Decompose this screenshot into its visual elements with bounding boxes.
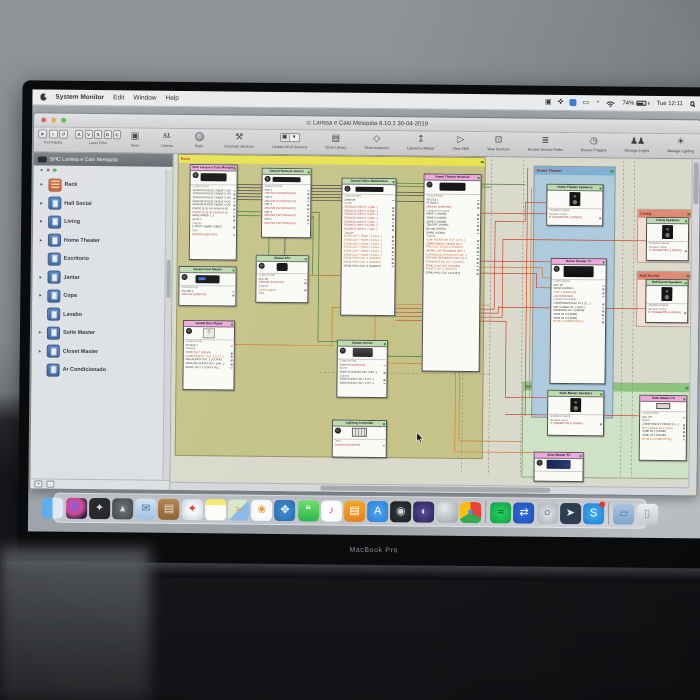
dock-icon-messages[interactable]: ❝ (298, 500, 319, 521)
toolbar-item-label: Manage Lighting (667, 149, 694, 153)
disclosure-triangle-icon[interactable]: ▸ (40, 182, 45, 188)
toolbar-item-label: Manage Logins (625, 148, 650, 152)
disclosure-triangle-icon[interactable]: ▸ (40, 200, 45, 206)
port-row[interactable]: Ethernet (Ethernet) (191, 233, 234, 237)
port-connector-icon (307, 219, 309, 221)
port-connector-icon (392, 229, 394, 231)
dock-icon-anyconnect[interactable]: ✥ (274, 499, 295, 520)
port-connector-icon (392, 225, 394, 227)
toolbar-item-label: State (195, 144, 203, 148)
sidebar-header-label: SHC Larissa e Caio Mesquita (50, 156, 118, 163)
layer-filter-button-v[interactable]: V (85, 130, 93, 139)
toolbar-item-label: Generate Services (224, 144, 254, 148)
port-connector-icon (602, 318, 604, 320)
bar-device-icon (355, 186, 383, 191)
port-connector-icon (307, 212, 309, 214)
node-savant-server[interactable]: Savant ServerControl PortsEthernet (Ethe… (336, 340, 388, 399)
node-device-image (547, 190, 602, 209)
menu-clock[interactable]: Tue 12:11 (657, 100, 683, 106)
port-row[interactable]: Ethernet Port (Ethernet) (264, 222, 309, 226)
sidebar-item-copa[interactable]: ▸Copa (32, 286, 171, 306)
node-device-image (646, 285, 687, 303)
dock-icon-app-store[interactable]: A (367, 500, 388, 521)
zone-icon (47, 363, 60, 376)
port-section-heading[interactable]: Data (258, 292, 306, 296)
layer-filter-button-c[interactable]: C (113, 130, 121, 139)
port-connector-icon (307, 193, 309, 195)
sidebar-item-escritorio[interactable]: Escritorio (33, 249, 172, 269)
sl-logo-icon: SL (163, 131, 171, 142)
layer-filter-button-a[interactable]: A (75, 130, 83, 139)
port-row[interactable]: ZONE PRE OUT (AUDIO) (425, 272, 478, 276)
node-port-list: Amplified InputsSpeaker InputIn (Speaker… (548, 414, 603, 427)
wire (481, 261, 551, 262)
port-connector-icon (233, 197, 235, 199)
clock-icon[interactable]: ◔ (595, 99, 599, 106)
sidebar-item-label: Escritorio (64, 256, 89, 262)
sidebar-item-living[interactable]: ▸Living (33, 212, 172, 232)
node-savant-host[interactable]: Savant Host MasterControl PortsRS-232 1E… (178, 266, 236, 307)
dock-icon-pointer-app[interactable]: ➤ (560, 502, 581, 523)
sidebar-item-suite-master[interactable]: ▸Suite Master (32, 323, 171, 343)
dock-icon-trash[interactable]: ▯ (637, 503, 658, 524)
dock-icon-magnifier-app[interactable]: ○ (537, 502, 558, 523)
dock-icon-contacts[interactable]: ▤ (158, 498, 179, 519)
rack-icon (48, 178, 61, 191)
toolbar-item-show-library[interactable]: ▤Show Library (325, 132, 346, 149)
desk-surface (0, 548, 150, 700)
port-connector-icon (602, 296, 604, 298)
wire (235, 307, 340, 346)
node-port-list: Control PortsBLE 10InputsCOMPONENT VIDEO… (640, 411, 686, 442)
device-avatar-icon (264, 176, 270, 182)
port-connector-icon (233, 205, 235, 207)
disclosure-triangle-icon[interactable]: ▸ (39, 348, 44, 354)
port-label: AV IN 1 (COMPOSITE) (553, 320, 584, 324)
inspector-icon: ◇ (373, 133, 380, 144)
port-connector-icon (477, 203, 479, 205)
apple-menu-icon[interactable] (40, 93, 46, 100)
add-zone-button[interactable]: + (34, 480, 42, 487)
node-hall-social-speakers[interactable]: Hall Social SpeakersAmplified InputsSpea… (645, 279, 688, 323)
node-suite-master-speakers[interactable]: Suite Master SpeakersAmplified InputsSpe… (547, 390, 604, 437)
node-device-image (647, 223, 688, 241)
cursor-tool-button[interactable]: ➤ (38, 129, 47, 138)
save-icon: ▣ (131, 130, 140, 141)
dock-icon-itunes[interactable]: ♪ (321, 500, 342, 521)
port-connector-icon (230, 367, 232, 369)
port-label: ZONE PRE OUT (AUDIO) (425, 272, 460, 276)
port-connector-icon (600, 423, 602, 425)
zone-separator (520, 160, 523, 476)
disclosure-triangle-icon[interactable]: ▸ (40, 219, 45, 225)
port-connector-icon (233, 208, 235, 210)
port-connector-icon (307, 208, 309, 210)
device-avatar-icon (192, 172, 198, 178)
port-connector-icon (391, 255, 393, 257)
port-connector-icon (392, 247, 394, 249)
layer-filter-button-s[interactable]: S (94, 130, 102, 139)
users-icon: ♟♟ (630, 136, 644, 147)
remove-zone-button[interactable]: - (46, 481, 54, 488)
tool-palette-label: Tool Palette (44, 140, 63, 144)
device-avatar-icon (344, 186, 350, 192)
dock-icon-launchpad[interactable]: ▴ (112, 498, 133, 519)
device-avatar-icon (536, 460, 542, 466)
port-connector-icon (233, 227, 235, 229)
server-device-icon (352, 348, 372, 357)
hostamp-device-icon (196, 275, 220, 283)
node-device-image (342, 184, 395, 195)
disclosure-triangle-icon[interactable]: ▸ (39, 330, 44, 336)
zone-icon (48, 215, 61, 228)
toolbar-item-label: View SMS (453, 146, 470, 150)
dock: ✦▴✉▤✦➢❀✥❝♪▤A◉◐●≈⇄○➤S▱▯ (54, 493, 646, 529)
port-connector-icon (383, 372, 385, 374)
port-row[interactable]: In (Speaker/IN L) (Mono) (648, 249, 686, 253)
zone-icon (48, 252, 61, 265)
port-connector-icon (476, 269, 478, 271)
port-row[interactable]: In (Speaker/IN L) (Mono) (550, 422, 602, 426)
status-icons: ▣✜▭◔ (545, 99, 599, 107)
battery-indicator[interactable]: 74% (622, 100, 649, 106)
clock-icon: ◷ (590, 135, 598, 146)
disclosure-triangle-icon[interactable]: ▸ (39, 293, 44, 299)
port-row[interactable]: Ethernet (Ethernet) (334, 443, 384, 447)
dock-icon-teamviewer[interactable]: ⇄ (513, 502, 534, 523)
node-suite-master-tv[interactable]: Suite Master TV (533, 452, 583, 483)
dock-icon-dark-app[interactable]: ✦ (89, 498, 110, 519)
node-network-switch[interactable]: Savant Network SwitchNetwork PortsPort 1… (261, 168, 312, 239)
node-global-disc[interactable]: Global Disc Player?Control PortsRS-232 1… (182, 320, 235, 391)
zoom-tool-button[interactable]: ○ (49, 130, 58, 139)
port-connector-icon (685, 250, 687, 252)
port-connector-icon (232, 291, 234, 293)
node-device-image (640, 401, 686, 411)
port-connector-icon (602, 314, 604, 316)
sidebar-item-jantar[interactable]: ▸Jantar (32, 268, 171, 288)
node-device-image (263, 174, 311, 185)
node-ht-tv[interactable]: Home Theater TVControl PortsBLE 10Serial… (549, 258, 606, 385)
node-ht-speakers[interactable]: Home Theater SpeakersAmplified InputsSpe… (546, 184, 603, 227)
sidebar-item-closet-master[interactable]: ▸Closet Master (32, 342, 171, 362)
port-connector-icon (683, 435, 685, 437)
dock-icon-downloads-folder[interactable]: ▱ (613, 503, 634, 524)
wire (455, 372, 535, 453)
home-icon (38, 156, 47, 162)
dock-icon-skype[interactable]: S (583, 503, 604, 524)
node-port-list: Control PortsRS-232 1Ethernet (Ethernet) (179, 285, 235, 298)
dock-icon-safari[interactable]: ✦ (182, 498, 203, 519)
sidebar-item-label: Hall Social (64, 200, 91, 206)
device-avatar-icon (185, 328, 191, 334)
macbook: System Monitor EditWindowHelp ▣✜▭◔ 74% T… (17, 80, 700, 582)
battery-percent: 74% (622, 100, 634, 106)
tvdark-device-icon (547, 460, 571, 469)
port-connector-icon (392, 211, 394, 213)
port-connector-icon (230, 360, 232, 362)
port-connector-icon (230, 352, 232, 354)
port-connector-icon (477, 251, 479, 253)
dropdown-control: ▣▾ (280, 133, 300, 142)
spotlight-icon[interactable] (690, 102, 695, 107)
toolbar-item-view-sms[interactable]: ▷View SMS (453, 134, 470, 151)
menu-item-edit[interactable]: Edit (113, 94, 124, 101)
display: System Monitor EditWindowHelp ▣✜▭◔ 74% T… (28, 89, 700, 538)
port-connector-icon (304, 290, 306, 292)
device-avatar-icon (181, 274, 187, 280)
port-connector-icon (232, 295, 234, 297)
port-row[interactable]: HDMI AUDIO OUT 2 (H...) (339, 381, 385, 385)
zone-icon (47, 345, 60, 358)
layer-filter-group: AVSDC Layer Filter (75, 130, 121, 145)
toolbar-items: ▣SaveSLLicenseState⚒Generate Services▣▾U… (128, 130, 696, 152)
toolbar-item-save[interactable]: ▣Save (128, 130, 142, 147)
node-port-list: DataEthernet (Ethernet) (333, 439, 386, 448)
node-living-speakers[interactable]: Living SpeakersAmplified InputsSpeaker I… (646, 217, 689, 261)
speaker-device-icon (569, 192, 580, 206)
move-icon[interactable]: ✜ (558, 99, 564, 106)
dock-icon-finder[interactable] (42, 497, 63, 518)
port-connector-icon (307, 216, 309, 218)
node-shc-host[interactable]: SHC Larissa e Caio MesquitaControl Ports… (189, 164, 238, 260)
device-avatar-icon (339, 348, 345, 354)
atv-device-icon (277, 263, 288, 271)
toolbar-item-view-services[interactable]: ⊡View Services (487, 134, 510, 151)
menu-bar-status: ▣✜▭◔ 74% Tue 12:11 (545, 99, 700, 108)
port-connector-icon (477, 225, 479, 227)
toolbar-item-state[interactable]: State (192, 131, 206, 148)
port-label: HDMI AUDIO OUT 2 (H...) (339, 381, 374, 385)
port-connector-icon (304, 279, 306, 281)
display-icon[interactable]: ▭ (582, 99, 589, 106)
node-device-image (552, 264, 606, 280)
port-connector-icon (476, 273, 478, 275)
toolbar-item-label: Upload to Master (407, 146, 434, 150)
document-icon: ▤ (306, 120, 311, 126)
port-label: Data (258, 292, 264, 296)
port-connector-icon (477, 200, 479, 202)
green-dot (53, 168, 57, 172)
sidebar-item-label: Closet Master (63, 348, 98, 354)
amp-device-icon (439, 183, 465, 191)
disclosure-icon[interactable]: ▼ (40, 167, 44, 172)
port-connector-icon (392, 251, 394, 253)
port-row[interactable]: AV IN 1 (COMPOSITE) (641, 437, 684, 441)
port-connector-icon (476, 266, 478, 268)
port-connector-icon (683, 428, 685, 430)
dock-icon-mail[interactable]: ✉ (135, 498, 156, 519)
dock-divider (485, 501, 486, 523)
device-avatar-icon (553, 266, 559, 272)
port-connector-icon (233, 212, 235, 214)
menu-item-window[interactable]: Window (133, 94, 156, 101)
wire (481, 267, 551, 278)
port-connector-icon (383, 365, 385, 367)
menu-item-help[interactable]: Help (165, 95, 178, 102)
zone-icon (48, 197, 61, 210)
window-title: ▤Larissa e Caio Mesquita 8.10.1 30-04-20… (34, 117, 700, 130)
node-port-list: Amplified InputsSpeaker InputIn (Speaker… (547, 208, 602, 221)
port-connector-icon (477, 207, 479, 209)
node-device-image (179, 272, 235, 286)
library-icon: ▤ (332, 133, 341, 144)
dock-icon-chrome[interactable]: ● (460, 501, 481, 522)
port-connector-icon (231, 345, 233, 347)
port-connector-icon (477, 233, 479, 235)
port-label: Ethernet (Ethernet) (181, 293, 207, 297)
port-connector-icon (683, 439, 685, 441)
bar-device-icon (273, 176, 301, 181)
port-connector-icon (391, 258, 393, 260)
port-connector-icon (477, 240, 479, 242)
sidebar-footer: +- (30, 478, 169, 489)
wire (459, 372, 523, 442)
port-label: Ethernet (Ethernet) (191, 233, 217, 237)
node-device-image: ? (184, 326, 234, 340)
layer-filter-button-d[interactable]: D (103, 130, 111, 139)
port-row[interactable]: In (Speaker/IN L) (Mono) (648, 311, 686, 315)
sidebar-item-rack[interactable]: ▸Rack (33, 175, 172, 195)
port-connector-icon (307, 205, 309, 207)
toolbar-item-show-inspector[interactable]: ◇Show Inspector (364, 133, 389, 150)
port-connector-icon (476, 262, 478, 264)
window-main: SHC Larissa e Caio Mesquita ▼ ▸Rack▸Hall… (30, 152, 699, 495)
disclosure-triangle-icon[interactable]: ▸ (40, 237, 45, 243)
sidebar-item-ar-condicionado[interactable]: Ar Condicionado (31, 360, 170, 380)
toolbar-item-upload-to-master[interactable]: ↥Upload to Master (407, 133, 435, 150)
port-connector-icon (477, 244, 479, 246)
app-window: ▤Larissa e Caio Mesquita 8.10.1 30-04-20… (29, 112, 700, 496)
zone-separator (631, 161, 634, 477)
state-circle-icon (195, 131, 204, 142)
node-port-list: Amplified InputsSpeaker InputIn (Speaker… (647, 241, 688, 254)
tool-palette-group: ➤ ○ ↺ Tool Palette (38, 129, 68, 144)
dock-icon-photos[interactable]: ❀ (251, 499, 272, 520)
toolbar-item-license[interactable]: SLLicense (160, 131, 174, 148)
node-port-list: Control PortsRS-232 1IR Input 1Ethernet … (424, 194, 481, 277)
port-connector-icon (602, 307, 604, 309)
box-icon[interactable]: ▣ (545, 99, 552, 106)
port-connector-icon (392, 214, 394, 216)
screen-bezel: System Monitor EditWindowHelp ▣✜▭◔ 74% T… (18, 80, 700, 538)
port-row[interactable]: SPDIF OUT 1 (OPTICAL) (185, 366, 232, 370)
port-row[interactable]: In (Speaker/IN L) (Mono) (549, 216, 601, 220)
mouse-cursor (416, 432, 424, 443)
port-connector-icon (307, 223, 309, 225)
photo-background: System Monitor EditWindowHelp ▣✜▭◔ 74% T… (0, 0, 700, 700)
toolbar-item-manage-logins[interactable]: ♟♟Manage Logins (625, 136, 650, 153)
toolbar-item-generate-services[interactable]: ⚒Generate Services (224, 131, 254, 148)
node-ht-receiver[interactable]: Home Theater ReceiverControl PortsRS-232… (422, 173, 482, 372)
teamviewer-icon[interactable] (569, 99, 576, 106)
toolbar-item-update-all-ui-screens[interactable]: ▣▾Update All UI Screens (272, 132, 307, 149)
node-multiswitch[interactable]: Savant Video MultiswitchControl PortsEth… (340, 178, 396, 317)
wifi-icon[interactable] (606, 100, 615, 106)
zone-separator (620, 161, 623, 477)
rotate-tool-button[interactable]: ↺ (59, 130, 68, 139)
node-device-image (191, 171, 237, 185)
sidebar-item-label: Suite Master (63, 330, 95, 336)
port-connector-icon (304, 282, 306, 284)
node-suite-master-tv-panel[interactable]: Suite Master TVControl PortsBLE 10Inputs… (639, 395, 688, 461)
port-label: In (Speaker/IN L) (Mono) (648, 249, 681, 253)
port-connector-icon (233, 201, 235, 203)
toolbar-item-label: Review Triggers (581, 148, 607, 152)
port-connector-icon (602, 292, 604, 294)
sidebar-item-label: Copa (63, 293, 77, 299)
node-device-image (535, 458, 583, 472)
disclosure-triangle-icon[interactable]: ▸ (40, 274, 45, 280)
port-connector-icon (683, 424, 685, 426)
port-row[interactable]: ZONE PRE OUT 3 (AUDIO) (343, 264, 393, 268)
dock-icon-spotify[interactable]: ≈ (490, 502, 511, 523)
toolbar-item-review-service-paths[interactable]: ≣Review Service Paths (528, 135, 563, 152)
dock-icon-steam[interactable]: ◉ (390, 501, 411, 522)
zone-icon (47, 326, 60, 339)
menu-app-name[interactable]: System Monitor (55, 94, 104, 102)
port-connector-icon (307, 201, 309, 203)
sidebar-item-hall-social[interactable]: ▸Hall Social (33, 194, 172, 214)
dock-icon-sphere[interactable] (437, 501, 458, 522)
port-row[interactable]: AV IN 1 (COMPOSITE) (553, 320, 604, 324)
port-label: In (Speaker/IN L) (Mono) (550, 422, 583, 426)
port-connector-icon (477, 247, 479, 249)
node-lighting-controller[interactable]: Lighting ControllerDataEthernet (Etherne… (332, 420, 387, 459)
port-connector-icon (392, 218, 394, 220)
amp-device-icon (201, 173, 227, 181)
node-device-image (333, 426, 386, 440)
node-global-atv[interactable]: Global ATVControl PortsBLE 10Ethernet (E… (255, 255, 308, 304)
node-port-list: Control PortsIR/Serial RS232 Output 1 (A… (190, 185, 237, 238)
port-row[interactable]: Ethernet (Ethernet) (181, 293, 234, 297)
port-connector-icon (684, 312, 686, 314)
port-connector-icon (602, 285, 604, 287)
node-port-list: Control PortsBLE 10Serial Control 1IP/IR… (551, 279, 605, 325)
port-label: Ethernet Port (Ethernet) (264, 222, 296, 226)
wire (480, 273, 550, 288)
node-port-list: Control PortsEthernetInputsSOURCE INPUT … (342, 194, 396, 269)
port-connector-icon (392, 244, 394, 246)
sidebar-item-home-theater[interactable]: ▸Home Theater (33, 231, 172, 251)
port-connector-icon (476, 255, 478, 257)
port-connector-icon (392, 240, 394, 242)
dock-icon-maps[interactable]: ➢ (228, 499, 249, 520)
toolbar-item-review-triggers[interactable]: ◷Review Triggers (581, 135, 607, 152)
port-connector-icon (392, 200, 394, 202)
dock-icon-eclipse[interactable]: ◐ (413, 501, 434, 522)
toolbar-item-label: Show Inspector (364, 145, 389, 149)
port-connector-icon (477, 214, 479, 216)
sidebar-item-lavabo[interactable]: Lavabo (32, 305, 171, 325)
toolbar-item-label: License (161, 143, 173, 147)
port-connector-icon (383, 445, 385, 447)
port-connector-icon (391, 262, 393, 264)
port-label: SPDIF OUT 1 (OPTICAL) (185, 366, 219, 370)
port-connector-icon (383, 383, 385, 385)
menu-bar: System Monitor EditWindowHelp ▣✜▭◔ 74% T… (32, 89, 700, 112)
port-connector-icon (683, 431, 685, 433)
dock-icon-siri[interactable] (66, 497, 87, 518)
dock-icon-books[interactable]: ▤ (344, 500, 365, 521)
dock-icon-notes[interactable] (205, 499, 226, 520)
port-label: In (Speaker/IN L) (Mono) (648, 311, 681, 315)
sidebar-item-label: Jantar (64, 274, 80, 280)
toolbar-item-manage-lighting[interactable]: ☀Manage Lighting (667, 136, 694, 153)
port-connector-icon (602, 289, 604, 291)
port-connector-icon (307, 197, 309, 199)
port-connector-icon (602, 311, 604, 313)
